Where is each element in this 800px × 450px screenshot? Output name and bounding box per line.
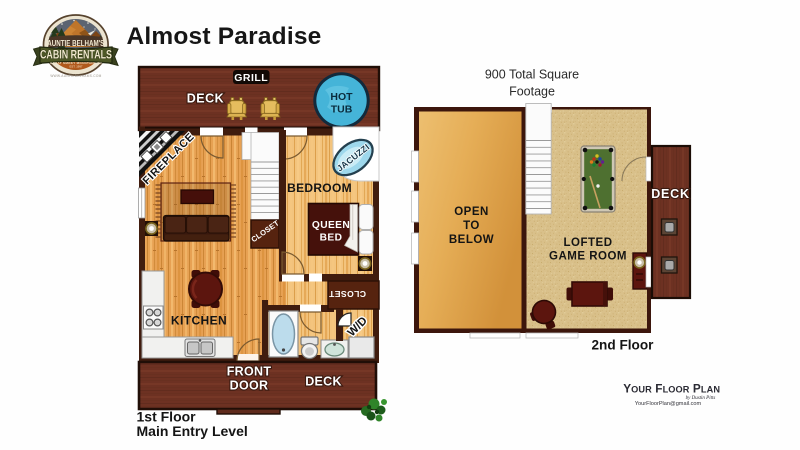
svg-text:WWW.AUNTIEBELHAMS.COM: WWW.AUNTIEBELHAMS.COM [50,74,101,78]
svg-text:YOUR FLOOR PLAN: YOUR FLOOR PLAN [623,381,720,395]
svg-text:DECK: DECK [305,375,342,389]
svg-text:BELOW: BELOW [449,234,494,246]
svg-text:TUB: TUB [331,104,353,116]
svg-text:GRILL: GRILL [234,72,268,84]
svg-text:KITCHEN: KITCHEN [171,314,227,328]
svg-text:OPEN: OPEN [454,206,489,218]
svg-text:AUNTIE BELHAM'S: AUNTIE BELHAM'S [47,39,104,48]
svg-text:CABIN RENTALS: CABIN RENTALS [40,48,112,62]
svg-text:DOOR: DOOR [230,379,269,393]
svg-text:YourFloorPlan@gmail.com: YourFloorPlan@gmail.com [635,401,702,407]
svg-text:DECK: DECK [187,92,224,106]
svg-text:TO: TO [463,220,480,232]
svg-text:Almost Paradise: Almost Paradise [127,23,322,50]
svg-text:2nd Floor: 2nd Floor [592,338,655,353]
svg-text:Main Entry Level: Main Entry Level [137,423,248,439]
svg-text:DECK: DECK [651,187,690,201]
svg-text:QUEEN: QUEEN [312,220,350,231]
svg-text:Footage: Footage [509,85,555,99]
svg-text:HOT: HOT [330,91,353,103]
svg-text:GAME ROOM: GAME ROOM [549,251,627,263]
svg-text:LOFTED: LOFTED [564,237,613,249]
svg-text:EST. 1997: EST. 1997 [70,65,83,69]
svg-text:CLOSET: CLOSET [328,289,366,299]
svg-text:900 Total Square: 900 Total Square [485,68,579,82]
svg-text:BEDROOM: BEDROOM [287,181,352,195]
svg-text:FRONT: FRONT [227,365,272,379]
svg-text:BED: BED [320,233,343,244]
